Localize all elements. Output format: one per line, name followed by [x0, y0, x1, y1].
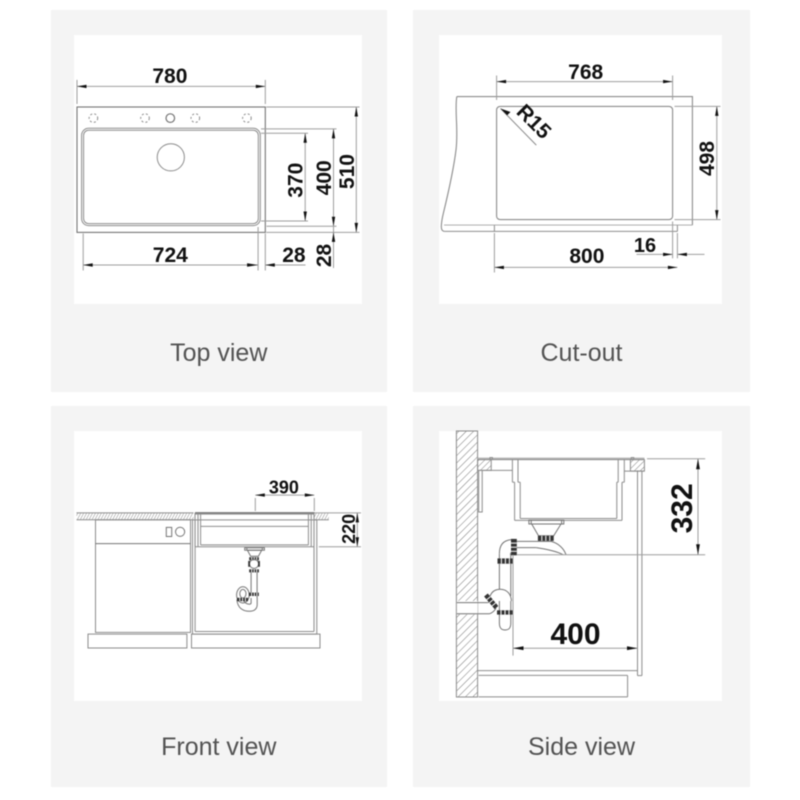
- svg-text:220: 220: [339, 514, 359, 544]
- svg-text:28: 28: [313, 244, 336, 268]
- svg-text:780: 780: [152, 65, 187, 88]
- svg-text:498: 498: [696, 141, 719, 176]
- svg-text:400: 400: [313, 160, 336, 195]
- svg-text:16: 16: [634, 235, 656, 257]
- svg-text:332: 332: [666, 483, 699, 533]
- svg-text:28: 28: [282, 244, 306, 267]
- svg-text:510: 510: [336, 154, 359, 189]
- svg-text:390: 390: [269, 477, 299, 497]
- svg-text:370: 370: [285, 163, 308, 198]
- svg-text:400: 400: [550, 618, 600, 651]
- svg-text:800: 800: [569, 245, 604, 268]
- svg-text:724: 724: [153, 244, 188, 267]
- svg-text:768: 768: [568, 61, 603, 84]
